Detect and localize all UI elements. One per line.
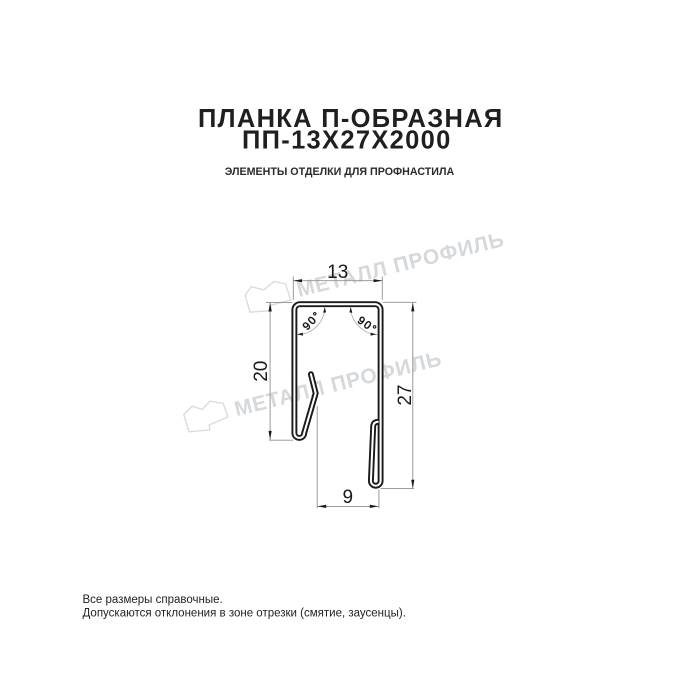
svg-text:90°: 90° [355, 315, 379, 337]
svg-text:90°: 90° [301, 309, 324, 333]
svg-text:20: 20 [251, 361, 272, 382]
svg-text:9: 9 [343, 487, 354, 508]
svg-text:13: 13 [327, 262, 348, 283]
svg-text:Все размеры справочные.: Все размеры справочные. [83, 594, 223, 606]
svg-text:ПП-13Х27Х2000: ПП-13Х27Х2000 [242, 127, 452, 155]
svg-text:Допускаются отклонения в зоне: Допускаются отклонения в зоне отрезки (с… [83, 608, 406, 620]
svg-text:27: 27 [395, 385, 416, 406]
svg-text:ЭЛЕМЕНТЫ ОТДЕЛКИ ДЛЯ ПРОФНАСТИ: ЭЛЕМЕНТЫ ОТДЕЛКИ ДЛЯ ПРОФНАСТИЛА [225, 166, 455, 178]
